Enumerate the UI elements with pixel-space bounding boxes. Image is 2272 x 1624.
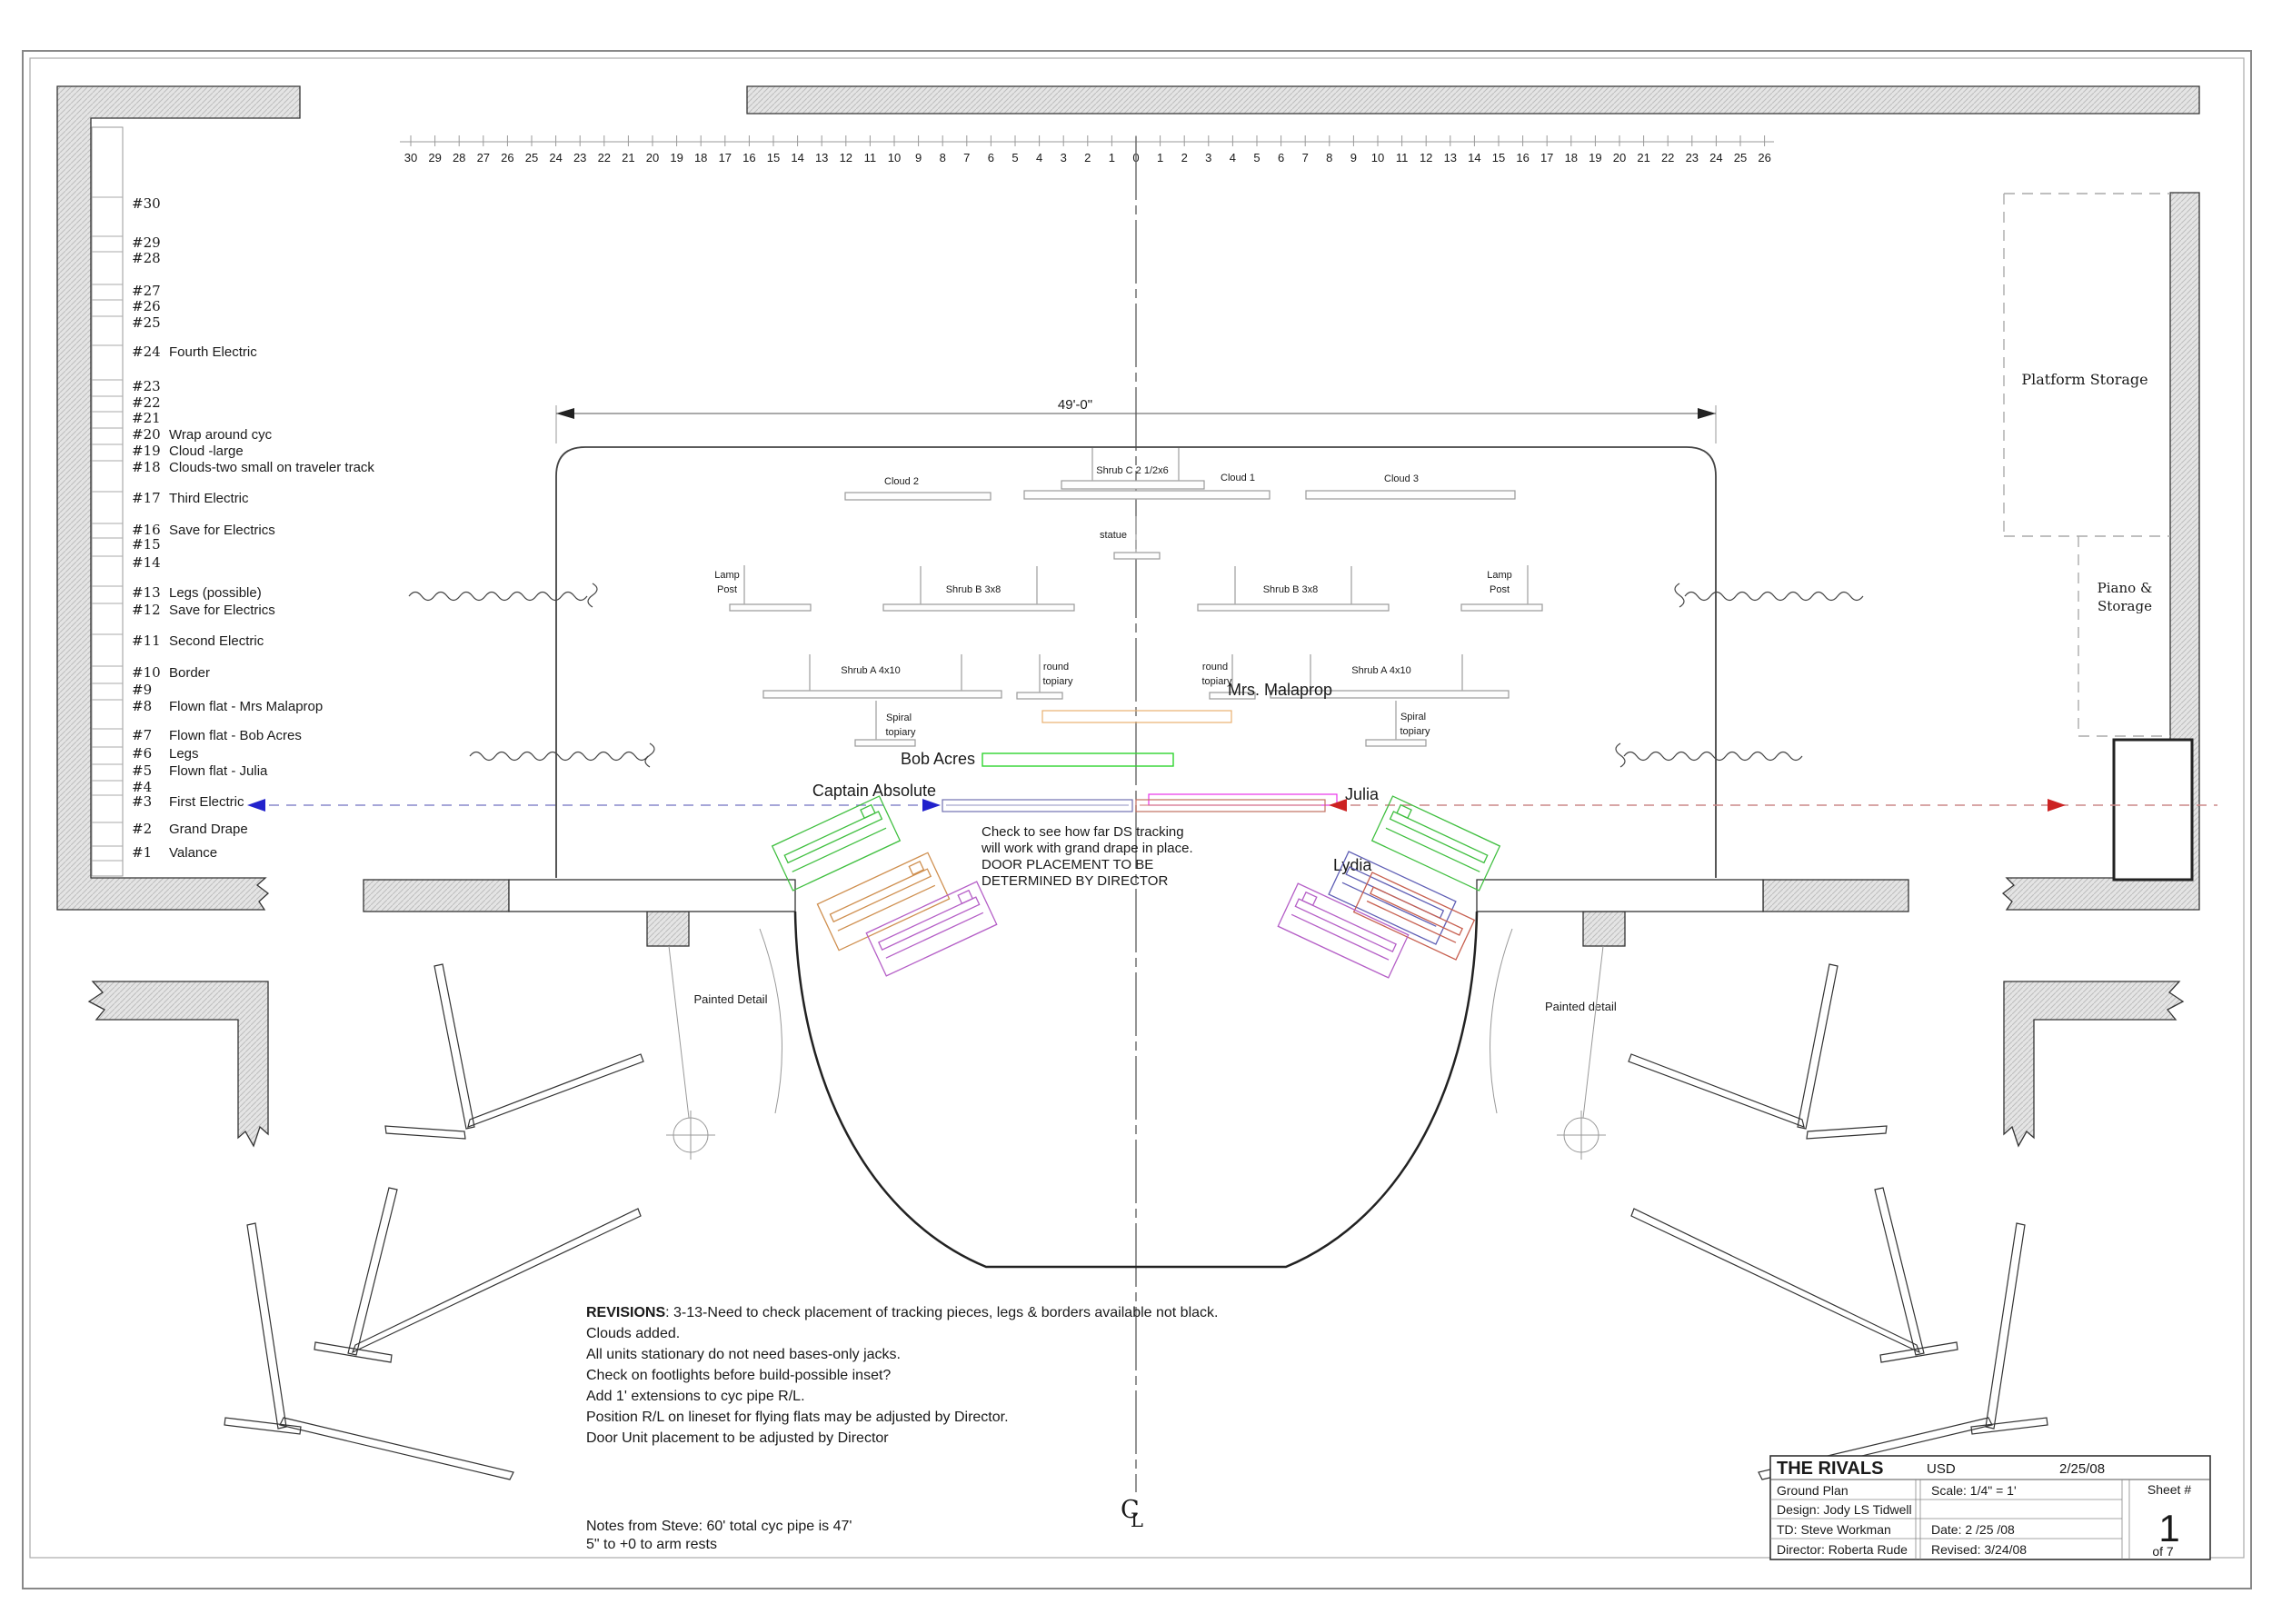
left-wing-wall	[89, 981, 268, 1146]
lineset-number: #15	[132, 536, 161, 553]
lineset-label: Legs	[169, 746, 199, 762]
lineset-number: #6	[132, 745, 152, 762]
ruler-number: 16	[742, 151, 755, 164]
ruler-number: 3	[1205, 151, 1211, 164]
tracking-arrow-left-out	[247, 799, 265, 812]
lineset-number: #5	[132, 762, 152, 779]
right-wing-wall	[2004, 981, 2183, 1146]
mrs-malaprop-label: Mrs. Malaprop	[1228, 681, 1332, 699]
ruler-number: 2	[1181, 151, 1188, 164]
date-label: Date: 2 /25 /08	[1931, 1522, 2015, 1537]
ruler-number: 12	[840, 151, 852, 164]
door-unit-left-tan	[817, 852, 949, 950]
lineset-number: #8	[132, 698, 152, 714]
svg-text:DOOR PLACEMENT TO BE: DOOR PLACEMENT TO BE	[982, 857, 1153, 872]
revisions-line: Clouds added.	[586, 1326, 680, 1341]
director-label: Director: Roberta Rude	[1777, 1542, 1908, 1557]
lineset-number: #3	[132, 793, 152, 810]
ruler-number: 3	[1061, 151, 1067, 164]
shrub-b-left-base	[883, 604, 1074, 611]
ruler-number: 23	[573, 151, 586, 164]
leg-squiggle-left-2	[470, 743, 654, 767]
ruler-number: 20	[646, 151, 659, 164]
lineset-number: #21	[132, 410, 161, 426]
ruler-number: 13	[815, 151, 828, 164]
shrub-b-right-base	[1198, 604, 1389, 611]
storage-areas: Platform Storage Piano & Storage	[2004, 194, 2192, 880]
round-topiary-left-base	[1017, 692, 1062, 699]
lineset-number: #20	[132, 426, 161, 443]
revised-label: Revised: 3/24/08	[1931, 1542, 2027, 1557]
lineset-label: Flown flat - Mrs Malaprop	[169, 699, 323, 714]
ruler-number: 5	[1253, 151, 1260, 164]
painted-detail-right-label: Painted detail	[1545, 1000, 1617, 1013]
ruler-number: 19	[1589, 151, 1601, 164]
revisions-line: Check on footlights before build-possibl…	[586, 1368, 891, 1383]
svg-text:will work with grand drape in: will work with grand drape in place.	[981, 841, 1193, 856]
leg-squiggle-right-1	[1675, 583, 1863, 607]
piano-storage-label-2: Storage	[2098, 598, 2152, 614]
theater-walls	[57, 86, 2199, 1146]
lineset-label: Save for Electrics	[169, 603, 275, 618]
julia-label: Julia	[1345, 785, 1380, 803]
ruler-number: 6	[1278, 151, 1284, 164]
left-door-tab	[647, 912, 689, 946]
cyc-dimension-label: 49'-0"	[1058, 397, 1092, 413]
lineset-label: Legs (possible)	[169, 585, 262, 601]
ground-plan-page: 3029282726252423222120191817161514131211…	[0, 0, 2272, 1624]
scenic-units: Cloud 2 Shrub C 2 1/2x6 Cloud 1 Cloud 3 …	[714, 448, 1542, 746]
date-top-label: 2/25/08	[2059, 1461, 2105, 1477]
lineset-number: #27	[132, 283, 161, 299]
bob-acres-flat	[982, 753, 1173, 766]
lamp-left-label-1: Lamp	[714, 570, 740, 581]
ruler-number: 29	[428, 151, 441, 164]
shrub-a-left-label: Shrub A 4x10	[841, 665, 900, 676]
ruler-number: 23	[1686, 151, 1699, 164]
lineset-number: #30	[132, 195, 161, 212]
shrub-a-right-label: Shrub A 4x10	[1351, 665, 1410, 676]
title-block: THE RIVALS USD 2/25/08 Ground Plan Desig…	[1770, 1456, 2210, 1559]
ruler-number: 10	[1371, 151, 1384, 164]
lineset-number: #11	[132, 633, 161, 649]
ruler-number: 13	[1444, 151, 1457, 164]
lineset-number: #25	[132, 314, 161, 331]
ruler-number: 7	[1302, 151, 1309, 164]
director-note: Check to see how far DS tracking will wo…	[981, 824, 1193, 889]
ruler-number: 8	[1326, 151, 1332, 164]
spiral-topiary-right-base	[1366, 740, 1426, 746]
td-label: TD: Steve Workman	[1777, 1522, 1891, 1537]
wing-flats-right	[1629, 964, 2048, 1480]
lineset-label: Border	[169, 665, 210, 681]
statue-base	[1114, 553, 1160, 559]
lineset-number: #14	[132, 554, 161, 571]
ruler-number: 18	[1565, 151, 1578, 164]
lineset-number: #17	[132, 490, 161, 506]
ruler-number: 16	[1516, 151, 1529, 164]
revisions-line: Position R/L on lineset for flying flats…	[586, 1410, 1009, 1425]
lineset-label: Fourth Electric	[169, 344, 257, 360]
captain-absolute-label: Captain Absolute	[812, 782, 936, 800]
cloud1-track	[1024, 491, 1270, 499]
top-wall	[747, 86, 2199, 114]
ruler-number: 30	[404, 151, 417, 164]
lineset-number: #13	[132, 584, 161, 601]
page-frame	[23, 51, 2251, 1589]
stage-ruler: 3029282726252423222120191817161514131211…	[400, 135, 1774, 164]
ruler-number: 11	[864, 151, 877, 164]
painted-detail-arc-right	[1490, 929, 1512, 1113]
shrub-b-right-label: Shrub B 3x8	[1263, 584, 1319, 595]
ruler-number: 15	[1492, 151, 1505, 164]
round-topiary-left-label-1: round	[1043, 662, 1069, 673]
svg-text:DETERMINED BY DIRECTOR: DETERMINED BY DIRECTOR	[982, 873, 1168, 889]
lamp-post-right-base	[1461, 604, 1542, 611]
ruler-number: 17	[1540, 151, 1553, 164]
lineset-number: #19	[132, 443, 161, 459]
revisions-line1: : 3-13-Need to check placement of tracki…	[665, 1305, 1218, 1320]
lineset-number: #23	[132, 378, 161, 394]
ruler-number: 17	[719, 151, 732, 164]
lineset-number: #28	[132, 250, 161, 266]
door-unit-left-green	[772, 796, 901, 891]
door-unit-right-green	[1372, 796, 1500, 891]
tracking-arrow-right-out	[2048, 799, 2066, 812]
design-label: Design: Jody LS Tidwell	[1777, 1502, 1912, 1517]
ruler-number: 27	[477, 151, 490, 164]
lineset-label: Flown flat - Bob Acres	[169, 728, 302, 743]
revisions-line: Add 1' extensions to cyc pipe R/L.	[586, 1389, 805, 1404]
spiral-topiary-left-base	[855, 740, 915, 746]
cloud3-label: Cloud 3	[1384, 473, 1419, 484]
lineset-label: Cloud -large	[169, 443, 244, 459]
ruler-number: 1	[1157, 151, 1163, 164]
ruler-number: 24	[549, 151, 562, 164]
lineset-label: Clouds-two small on traveler track	[169, 460, 374, 475]
leg-squiggle-right-2	[1616, 743, 1802, 767]
leg-squiggle-left-1	[409, 583, 597, 607]
ruler-number: 14	[1468, 151, 1480, 164]
ruler-number: 4	[1230, 151, 1236, 164]
ruler-number: 9	[1350, 151, 1357, 164]
lineset-label: Flown flat - Julia	[169, 763, 268, 779]
piano-storage-label-1: Piano &	[2098, 580, 2153, 596]
shrub-c-base	[1061, 481, 1204, 489]
statue-label: statue	[1100, 530, 1127, 541]
cloud1-label: Cloud 1	[1221, 473, 1255, 483]
sheet-name-label: Ground Plan	[1777, 1483, 1848, 1498]
ruler-number: 9	[915, 151, 922, 164]
ruler-number: 6	[988, 151, 994, 164]
shrub-c-label: Shrub C 2 1/2x6	[1096, 465, 1169, 476]
ruler-number: 15	[767, 151, 780, 164]
lineset-number: #26	[132, 298, 161, 314]
ruler-number: 4	[1036, 151, 1042, 164]
character-flats: Mrs. Malaprop Bob Acres Julia Captain Ab…	[247, 681, 2217, 889]
bob-acres-label: Bob Acres	[901, 750, 975, 768]
lineset-label: Grand Drape	[169, 822, 248, 837]
lineset-number: #24	[132, 344, 161, 360]
round-topiary-right-label-1: round	[1202, 662, 1228, 673]
company-label: USD	[1927, 1461, 1956, 1477]
platform-storage-label: Platform Storage	[2021, 371, 2147, 388]
ruler-number: 2	[1084, 151, 1091, 164]
lamp-right-label-1: Lamp	[1487, 570, 1512, 581]
lamp-right-label-2: Post	[1490, 584, 1510, 595]
ruler-number: 19	[670, 151, 683, 164]
ruler-number: 10	[888, 151, 901, 164]
tracking-arrow-left-in	[922, 799, 941, 812]
shrub-b-left-label: Shrub B 3x8	[946, 584, 1001, 595]
cloud3-track	[1306, 491, 1515, 499]
lamp-post-left-base	[730, 604, 811, 611]
lineset-label: Wrap around cyc	[169, 427, 273, 443]
ruler-number: 24	[1709, 151, 1722, 164]
lineset-label: Third Electric	[169, 491, 249, 506]
spiral-topiary-left-label-2: topiary	[885, 727, 916, 738]
wing-flats-left	[224, 964, 643, 1480]
steve-note-line-1: Notes from Steve: 60' total cyc pipe is …	[586, 1519, 852, 1534]
lineset-number: #10	[132, 664, 161, 681]
steve-notes: Notes from Steve: 60' total cyc pipe is …	[586, 1519, 852, 1552]
ruler-number: 8	[940, 151, 946, 164]
door-unit-right-purple	[1278, 883, 1408, 978]
lineset-label: First Electric	[169, 794, 244, 810]
ruler-number: 26	[1758, 151, 1770, 164]
revisions-title: REVISIONS	[586, 1305, 665, 1320]
svg-text:REVISIONS: 3-13-Need to check: REVISIONS: 3-13-Need to check placement …	[586, 1305, 1218, 1320]
ruler-number: 11	[1396, 151, 1409, 164]
ruler-number: 25	[1734, 151, 1747, 164]
ruler-number: 21	[1637, 151, 1649, 164]
right-proscenium-wall	[1763, 880, 1908, 912]
scale-label: Scale: 1/4" = 1'	[1931, 1483, 2017, 1498]
left-proscenium-wall	[364, 880, 509, 912]
ruler-number: 20	[1613, 151, 1626, 164]
lineset-rack: #30#29#28#27#26#25#24Fourth Electric#23#…	[92, 127, 374, 876]
lineset-number: #29	[132, 234, 161, 251]
tracking-arrow-right-in	[1329, 799, 1347, 812]
ruler-number: 22	[598, 151, 611, 164]
ruler-number: 22	[1661, 151, 1674, 164]
ruler-number: 14	[791, 151, 803, 164]
lineset-number: #9	[132, 682, 152, 698]
steve-note-line-2: 5" to +0 to arm rests	[586, 1537, 717, 1552]
captain-absolute-flat	[942, 800, 1132, 812]
ruler-number: 21	[622, 151, 634, 164]
ruler-number: 12	[1420, 151, 1432, 164]
ruler-number: 5	[1011, 151, 1018, 164]
ruler-number: 26	[501, 151, 513, 164]
svg-text:Check to see how far DS track: Check to see how far DS tracking	[982, 824, 1184, 840]
lineset-number: #18	[132, 459, 161, 475]
revisions-block: REVISIONS: 3-13-Need to check placement …	[586, 1305, 1218, 1446]
revisions-line: Door Unit placement to be adjusted by Di…	[586, 1430, 889, 1446]
spiral-topiary-right-label-1: Spiral	[1400, 712, 1426, 722]
sheet-of-label: of 7	[2152, 1544, 2174, 1559]
small-storage-room	[2114, 740, 2192, 880]
lydia-flat	[1136, 800, 1325, 812]
ruler-number: 1	[1109, 151, 1115, 164]
spiral-topiary-left-label-1: Spiral	[886, 712, 912, 723]
mrs-malaprop-flat	[1042, 711, 1231, 722]
spiral-topiary-right-label-2: topiary	[1400, 726, 1430, 737]
painted-detail-arc-left	[760, 929, 782, 1113]
show-title: THE RIVALS	[1777, 1459, 1883, 1479]
lamp-left-label-2: Post	[717, 584, 737, 595]
lineset-number: #12	[132, 602, 161, 618]
sheet-number-value: 1	[2158, 1507, 2179, 1549]
lineset-number: #2	[132, 821, 152, 837]
ruler-number: 28	[453, 151, 465, 164]
cloud2-label: Cloud 2	[884, 476, 919, 487]
ruler-number: 25	[525, 151, 538, 164]
ground-plan-drawing: 3029282726252423222120191817161514131211…	[0, 0, 2272, 1624]
lineset-label: Save for Electrics	[169, 523, 275, 538]
cloud2-track	[845, 493, 991, 500]
round-topiary-left-label-2: topiary	[1042, 676, 1073, 687]
lineset-label: Second Electric	[169, 633, 264, 649]
lineset-number: #7	[132, 727, 152, 743]
sheet-number-title: Sheet #	[2147, 1482, 2191, 1497]
ruler-number: 18	[694, 151, 707, 164]
lineset-number: #22	[132, 394, 161, 411]
lineset-number: #1	[132, 844, 152, 861]
ruler-number: 7	[963, 151, 970, 164]
lineset-label: Valance	[169, 845, 217, 861]
shrub-a-left-base	[763, 691, 1001, 698]
painted-detail-left-label: Painted Detail	[694, 992, 768, 1006]
revisions-line: All units stationary do not need bases-o…	[586, 1347, 901, 1362]
right-door-tab	[1583, 912, 1625, 946]
center-line-marker-l: L	[1131, 1509, 1143, 1531]
